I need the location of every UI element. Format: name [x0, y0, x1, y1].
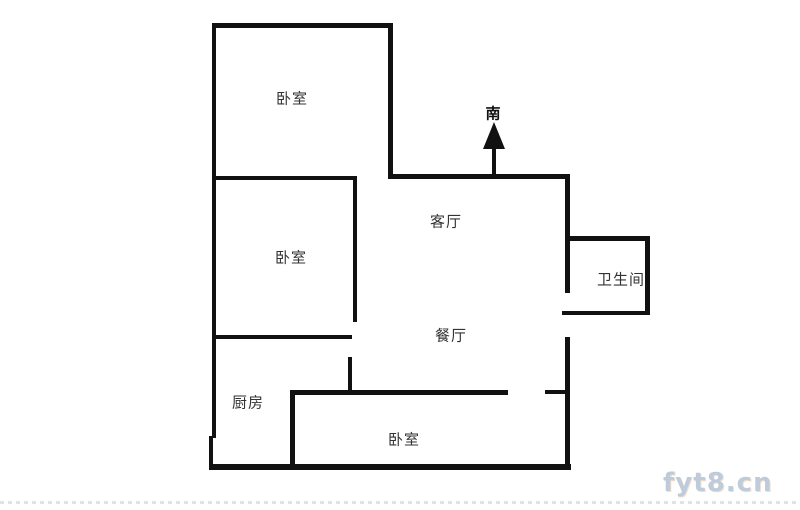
- floorplan-canvas: 南 卧室 卧室 客厅 餐厅 卫生间 厨房 卧室 fyt8.cn: [0, 0, 800, 510]
- wall-bedrooms-divider: [212, 176, 357, 180]
- wall-exterior-right-upper: [565, 174, 570, 293]
- wall-kitchen-door-post: [348, 357, 352, 393]
- compass-arrow-shaft: [492, 146, 496, 176]
- room-label-bedroom-middle: 卧室: [275, 251, 307, 266]
- wall-bedroom-top-right: [388, 23, 393, 176]
- wall-exterior-bottom: [209, 464, 571, 470]
- room-label-bedroom-top: 卧室: [276, 92, 308, 107]
- wall-bedroom-middle-bottom: [212, 335, 352, 339]
- room-label-bedroom-bottom: 卧室: [388, 433, 420, 448]
- room-label-living-room: 客厅: [430, 215, 462, 230]
- wall-exterior-left-lower: [209, 436, 213, 470]
- wall-bathroom-right: [645, 236, 650, 315]
- wall-exterior-top: [212, 23, 392, 28]
- room-label-bathroom: 卫生间: [597, 273, 645, 288]
- wall-exterior-left: [212, 23, 216, 438]
- wall-step-top: [388, 174, 570, 179]
- wall-bedroom-bottom-top: [290, 390, 508, 395]
- room-label-dining-room: 餐厅: [435, 329, 467, 344]
- compass-arrow-icon: [483, 122, 505, 149]
- wall-bedroom-bottom-left: [290, 390, 295, 470]
- wall-bathroom-top: [565, 236, 650, 241]
- room-label-kitchen: 厨房: [232, 396, 264, 411]
- bottom-edge-artifact: [0, 501, 800, 504]
- wall-exterior-right-lower: [565, 337, 570, 470]
- site-watermark: fyt8.cn: [663, 470, 773, 496]
- compass-south-label: 南: [485, 107, 500, 122]
- wall-bedroom-bottom-top-right: [545, 390, 570, 394]
- wall-bedroom-middle-right: [353, 176, 357, 322]
- wall-bathroom-bottom: [562, 311, 650, 315]
